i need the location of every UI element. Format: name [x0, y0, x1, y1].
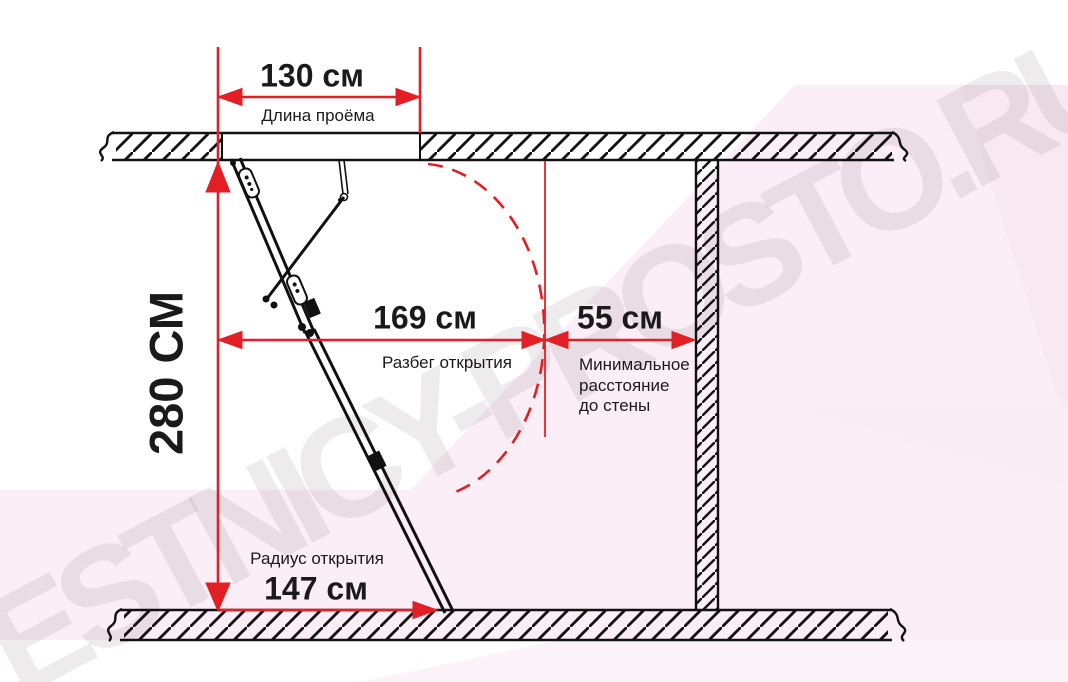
ceiling	[100, 132, 907, 161]
floor-break-left	[108, 609, 122, 641]
ceiling-break-left	[100, 132, 114, 161]
dim-wall-clearance-label: Минимальное расстояние до стены	[579, 355, 690, 417]
dim-wall-clearance-label-line2: расстояние	[579, 376, 690, 397]
dim-wall-clearance-value: 55 см	[577, 300, 663, 337]
dim-opening-length-value: 130 см	[260, 58, 364, 95]
attic-ladder	[230, 158, 453, 613]
wall	[696, 160, 718, 610]
floor-break-right	[890, 609, 905, 641]
arrow-up-280	[206, 162, 230, 192]
hinge-plate	[285, 274, 309, 307]
floor	[108, 609, 905, 641]
strut-bolt	[271, 302, 278, 309]
dim-wall-clearance-label-line3: до стены	[579, 396, 690, 417]
strut-bolt	[263, 296, 270, 303]
dim-opening-run-value: 169 см	[373, 300, 477, 337]
dim-opening-radius-label: Радиус открытия	[250, 549, 384, 569]
arrow-down-280	[206, 583, 230, 611]
dim-ceiling-height-value: 280 СМ	[139, 291, 194, 455]
bend-bolt	[298, 323, 306, 331]
dim-opening-radius-value: 147 см	[264, 571, 368, 608]
top-hinge	[230, 160, 236, 166]
dim-opening-run-label: Разбег открытия	[382, 353, 512, 373]
dim-opening-length-label: Длина проёма	[261, 106, 374, 126]
bend-bolt	[306, 329, 314, 337]
dim-wall-clearance-label-line1: Минимальное	[579, 355, 690, 376]
ceiling-break-right	[892, 132, 907, 161]
diagram-canvas: LESTNICY-PROSTO.RU	[0, 0, 1068, 682]
